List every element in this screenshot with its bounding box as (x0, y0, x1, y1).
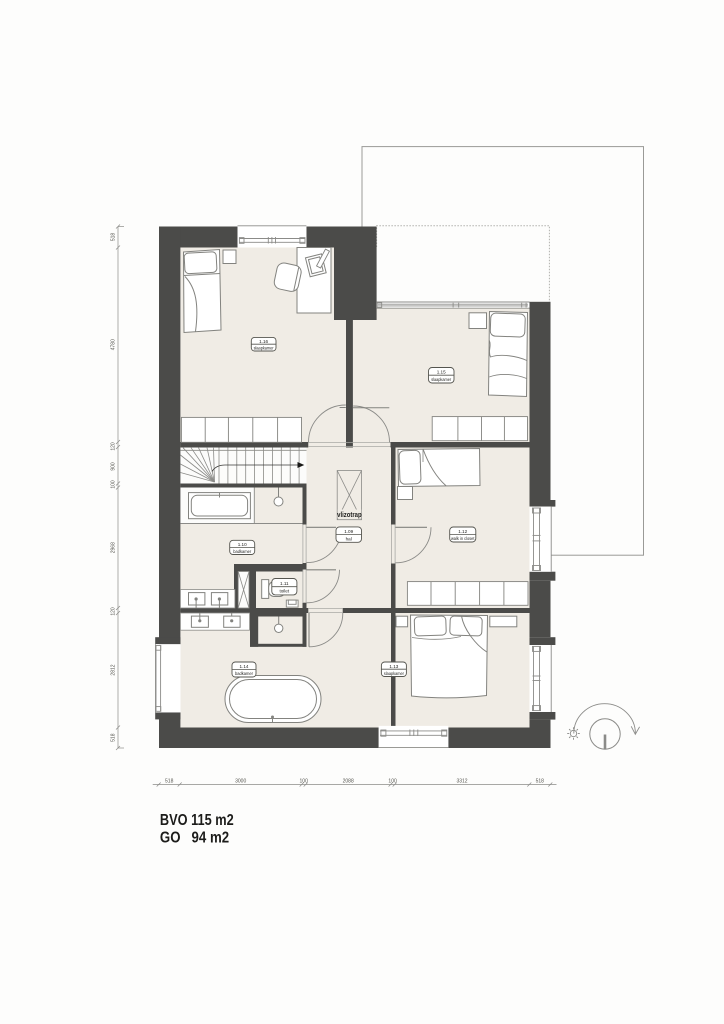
svg-text:100: 100 (300, 779, 309, 785)
svg-text:100: 100 (388, 779, 397, 785)
svg-text:4780: 4780 (111, 339, 117, 350)
svg-text:518: 518 (536, 779, 545, 785)
svg-text:518: 518 (111, 733, 117, 742)
svg-text:BVO 115 m2: BVO 115 m2 (160, 812, 234, 829)
svg-text:518: 518 (165, 779, 174, 785)
svg-text:2812: 2812 (111, 664, 117, 675)
svg-text:3312: 3312 (456, 779, 467, 785)
svg-text:3000: 3000 (235, 779, 246, 785)
svg-text:900: 900 (111, 462, 117, 471)
svg-text:GO 94 m2: GO 94 m2 (160, 829, 229, 846)
svg-text:100: 100 (111, 480, 117, 489)
svg-text:518: 518 (111, 233, 117, 242)
svg-text:120: 120 (111, 442, 117, 451)
svg-text:2968: 2968 (111, 542, 117, 553)
svg-text:2088: 2088 (343, 779, 354, 785)
svg-text:120: 120 (111, 607, 117, 616)
